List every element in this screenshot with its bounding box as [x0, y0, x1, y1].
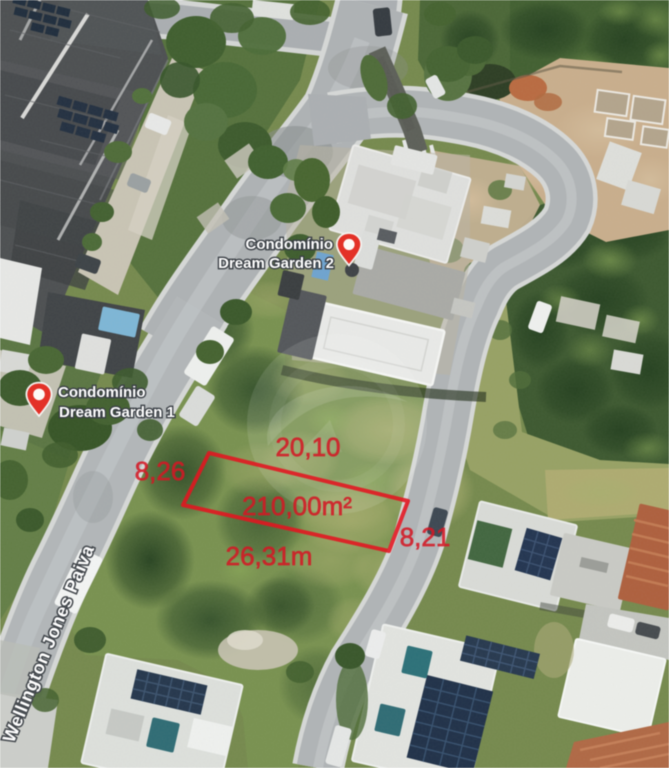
- svg-text:20,10: 20,10: [275, 432, 340, 462]
- svg-text:Condomínio: Condomínio: [246, 236, 333, 253]
- svg-text:26,31m: 26,31m: [226, 541, 313, 571]
- svg-text:Dream Garden 2: Dream Garden 2: [218, 255, 334, 272]
- svg-text:8,21: 8,21: [400, 522, 451, 552]
- svg-text:8,26: 8,26: [135, 456, 186, 486]
- svg-text:210,00m²: 210,00m²: [242, 491, 352, 521]
- svg-text:Condomínio: Condomínio: [58, 384, 145, 401]
- svg-text:Dream Garden 1: Dream Garden 1: [59, 404, 175, 421]
